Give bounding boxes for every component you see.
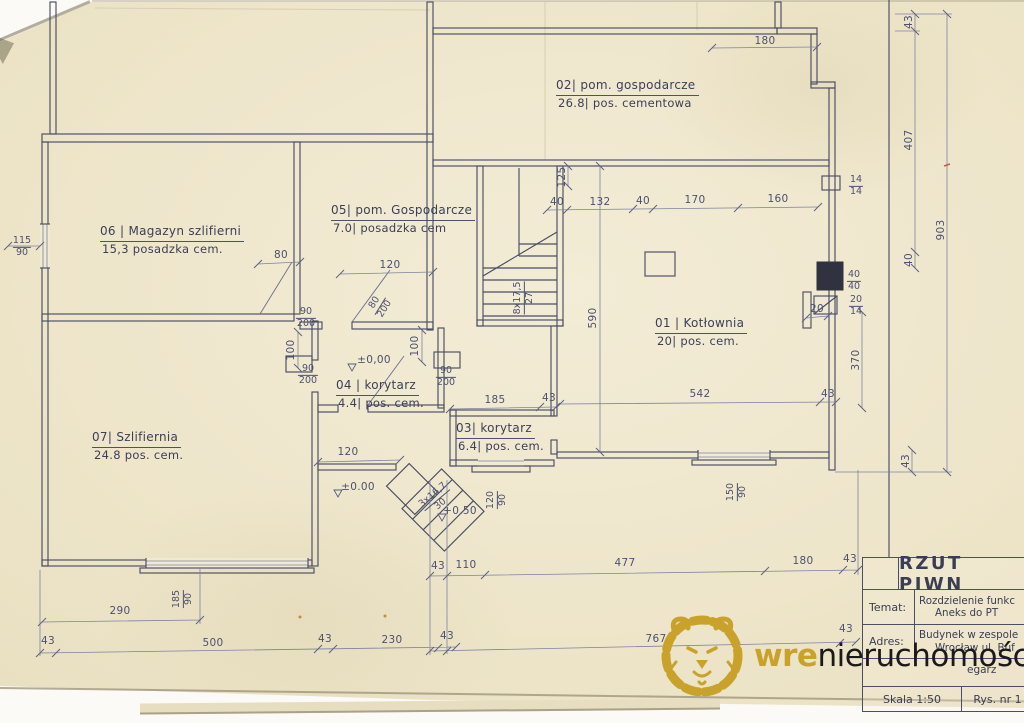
- dimension-label: 120: [338, 446, 359, 458]
- dimension-label: 40: [550, 196, 564, 208]
- dimension-label: 477: [615, 557, 636, 569]
- room-label: 07| Szlifiernia24.8 pos. cem.: [92, 430, 183, 463]
- dimension-label: 43: [821, 388, 835, 400]
- room-label: 03| korytarz6.4| pos. cem.: [456, 421, 544, 454]
- stacked-dimension-label: 12090: [486, 491, 508, 509]
- stacked-dimension-label: 90200: [436, 366, 456, 388]
- dimension-label: 370: [850, 350, 862, 371]
- dimension-label: 542: [690, 388, 711, 400]
- dimension-label: 100: [285, 340, 297, 361]
- dimension-label: 43: [440, 630, 454, 642]
- dimension-label: ±0.00: [341, 481, 375, 493]
- brand-bold-part: wre: [754, 638, 817, 674]
- stacked-dimension-label: 8x17,527: [513, 282, 535, 315]
- dimension-label: 180: [755, 35, 776, 47]
- dimension-label: 903: [935, 220, 947, 241]
- dimension-label: ±0,00: [357, 354, 391, 366]
- room-label: 05| pom. Gospodarcze7.0| posadzka cem: [331, 203, 475, 236]
- stacked-dimension-label: 18590: [172, 590, 194, 608]
- scanned-floor-plan-page: 1804340740903370431254013240170160590208…: [0, 0, 1024, 723]
- dimension-label: 80: [274, 249, 288, 261]
- dimension-label: 43: [542, 392, 556, 404]
- dimension-label: 230: [382, 634, 403, 646]
- dimension-label: +0.50: [443, 505, 477, 517]
- stacked-dimension-label: 90200: [296, 307, 316, 329]
- temat-value-line1: Rozdzielenie funkc: [919, 595, 1024, 607]
- dimension-label: 120: [380, 259, 401, 271]
- dimension-label: 180: [793, 555, 814, 567]
- stacked-dimension-label: 90200: [298, 364, 318, 386]
- dimension-label: 132: [590, 196, 611, 208]
- title-block-header-row: RZUT PIWN: [863, 558, 1024, 589]
- dimension-label: 43: [900, 454, 912, 468]
- stacked-dimension-label: 11590: [13, 236, 31, 258]
- stacked-dimension-label: 2014: [849, 295, 863, 317]
- dimension-label: 40: [636, 195, 650, 207]
- dimension-label: 43: [903, 15, 915, 29]
- dimension-label: 185: [485, 394, 506, 406]
- dimension-label: 43: [843, 553, 857, 565]
- dimension-label: 43: [431, 560, 445, 572]
- drawing-title: RZUT PIWN: [898, 558, 1024, 589]
- watermark-brand-text: wrenieruchomości: [754, 638, 1024, 674]
- dimension-label: 590: [587, 308, 599, 329]
- brand-regular-part: nieruchomości: [817, 638, 1024, 674]
- dimension-label: 290: [110, 605, 131, 617]
- dimension-label: 170: [685, 194, 706, 206]
- dimension-label: 20: [810, 303, 824, 315]
- room-label: 06 | Magazyn szlifierni15,3 posadzka cem…: [100, 224, 244, 257]
- stacked-dimension-label: 4040: [847, 270, 861, 292]
- dimension-label: 407: [903, 130, 915, 151]
- dimension-label: 125: [556, 167, 568, 188]
- dimension-label: 160: [768, 193, 789, 205]
- dimension-label: 43: [318, 633, 332, 645]
- room-label: 02| pom. gospodarcze26.8| pos. cementowa: [556, 78, 699, 111]
- stacked-dimension-label: 1414: [849, 175, 863, 197]
- room-label: 01 | Kotłownia20| pos. cem.: [655, 316, 747, 349]
- dimension-label: 40: [903, 253, 915, 267]
- dimension-label: 110: [456, 559, 477, 571]
- lion-head-icon: [652, 610, 752, 702]
- watermark: wrenieruchomości: [652, 610, 1024, 702]
- dimension-label: 43: [41, 635, 55, 647]
- stacked-dimension-label: 80200: [365, 292, 395, 321]
- dimension-label: 100: [409, 336, 421, 357]
- dimension-label: 500: [203, 637, 224, 649]
- stacked-dimension-label: 15090: [726, 483, 748, 501]
- room-label: 04 | korytarz4.4| pos. cem.: [336, 378, 424, 411]
